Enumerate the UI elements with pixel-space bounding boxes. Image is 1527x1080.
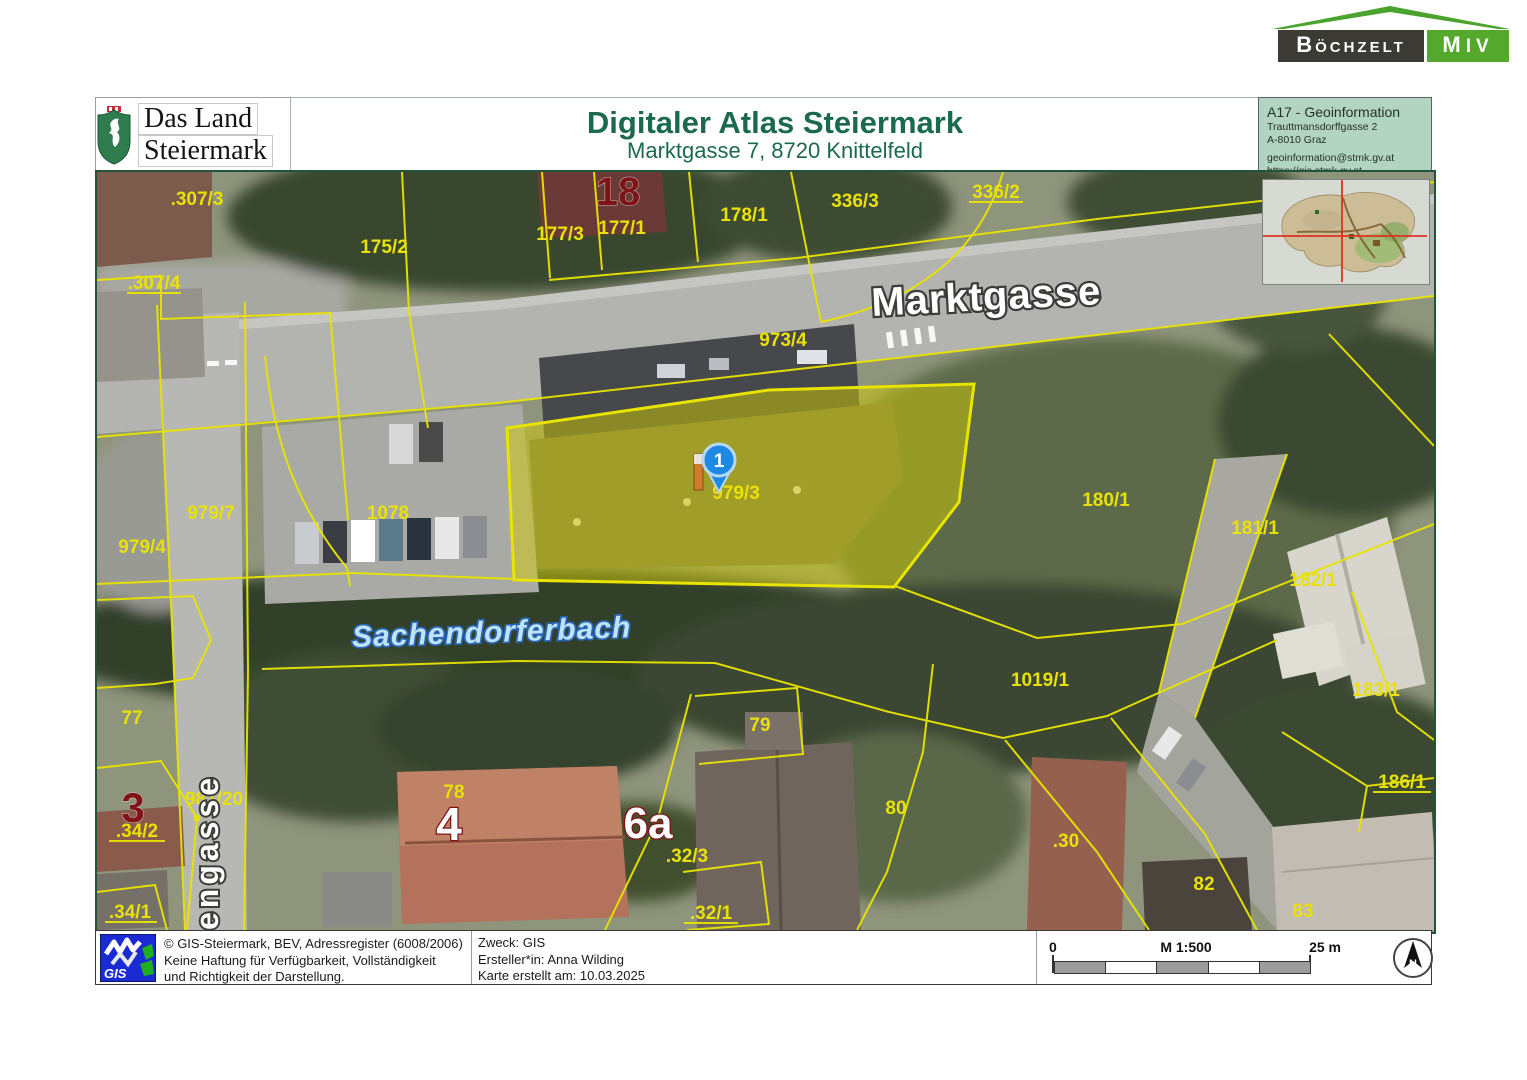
scale-start-label: 0 [1049, 939, 1057, 955]
street-label-side: engasse [189, 774, 225, 930]
map-created-date: Karte erstellt am: 10.03.2025 [478, 968, 645, 985]
parcel-label: .32/3 [666, 846, 708, 867]
header: Digitaler Atlas Steiermark Marktgasse 7,… [290, 97, 1260, 172]
logo-line2: Steiermark [138, 135, 273, 167]
parcel-label: 336/3 [831, 191, 879, 212]
overview-map [1262, 179, 1430, 285]
scale-end-label: 25 m [1281, 939, 1341, 955]
parcel-label: 80 [885, 798, 906, 819]
gis-logo: GIS [100, 934, 156, 982]
page-root: Böchzelt MIV Das Land Steiermark Digital… [0, 0, 1527, 1080]
parcel-label: 178/1 [720, 205, 768, 226]
credit-line: Keine Haftung für Verfügbarkeit, Vollstä… [164, 953, 463, 970]
footer-credits: © GIS-Steiermark, BEV, Adressregister (6… [164, 936, 463, 986]
brand-left: Böchzelt [1278, 30, 1424, 62]
gis-logo-text: GIS [104, 966, 127, 981]
department-info-box: A17 - Geoinformation Trauttmansdorffgass… [1258, 97, 1432, 179]
footer: GIS © GIS-Steiermark, BEV, Adressregiste… [95, 930, 1432, 985]
footer-divider-1 [471, 931, 472, 984]
roof-icon [1268, 4, 1516, 30]
department-city: A-8010 Graz [1267, 134, 1423, 147]
parcel-label: 979/4 [118, 537, 166, 558]
parcel-label: 1078 [367, 503, 409, 524]
house-number-6a: 6a [624, 799, 673, 848]
north-letter: N [1409, 958, 1417, 970]
department-email: geoinformation@stmk.gv.at [1267, 152, 1423, 165]
logo-line1: Das Land [138, 103, 258, 135]
company-logo: Böchzelt MIV [1268, 4, 1516, 64]
map-creator: Ersteller*in: Anna Wilding [478, 952, 645, 969]
parcel-label: 186/1 [1378, 772, 1426, 793]
department-street: Trauttmansdorffgasse 2 [1267, 121, 1423, 134]
parcel-label: 182/1 [1289, 570, 1337, 591]
map-canvas[interactable]: .307/3 .307/4 175/2 177/3 177/1 178/1 33… [95, 170, 1436, 934]
house-number-18: 18 [596, 172, 641, 214]
parcel-label: .30 [1053, 831, 1079, 852]
parcel-label: .307/4 [128, 273, 181, 294]
land-steiermark-logo: Das Land Steiermark [95, 97, 292, 172]
parcel-label: 336/2 [972, 182, 1020, 203]
parcel-label: .32/1 [690, 903, 733, 924]
map-purpose: Zweck: GIS [478, 935, 645, 952]
parcel-label: .307/3 [171, 189, 224, 210]
brand-right: MIV [1427, 30, 1509, 62]
department-name: A17 - Geoinformation [1267, 104, 1423, 120]
footer-meta: Zweck: GIS Ersteller*in: Anna Wilding Ka… [478, 935, 645, 985]
credit-line: und Richtigkeit der Darstellung. [164, 969, 463, 986]
scale-ratio-label: M 1:500 [1136, 939, 1236, 955]
parcel-label: 82 [1193, 874, 1214, 895]
house-number-4: 4 [436, 798, 462, 850]
north-arrow-icon: N [1391, 936, 1435, 980]
steiermark-shield-icon [96, 105, 132, 165]
page-subtitle: Marktgasse 7, 8720 Knittelfeld [627, 139, 923, 163]
house-number-3: 3 [121, 784, 144, 831]
parcel-label: 83 [1292, 901, 1313, 922]
parcel-label: 979/7 [187, 503, 235, 524]
footer-divider-2 [1036, 931, 1037, 984]
parcel-label: 177/3 [536, 224, 584, 245]
parcel-label: 1019/1 [1011, 670, 1070, 691]
parcel-label: 181/1 [1231, 518, 1279, 539]
credit-line: © GIS-Steiermark, BEV, Adressregister (6… [164, 936, 463, 953]
parcel-label: 180/1 [1082, 490, 1130, 511]
page-title: Digitaler Atlas Steiermark [587, 106, 963, 139]
parcel-label: 79 [749, 715, 770, 736]
parcel-label: 77 [121, 708, 142, 729]
parcel-label: 973/4 [759, 330, 807, 351]
parcel-label: .34/1 [109, 902, 152, 923]
parcel-label: 183/1 [1352, 680, 1400, 701]
scale-bar [1054, 961, 1311, 974]
parcel-label: 177/1 [598, 218, 646, 239]
pin-number: 1 [714, 451, 725, 472]
parcel-label: 175/2 [360, 237, 408, 258]
